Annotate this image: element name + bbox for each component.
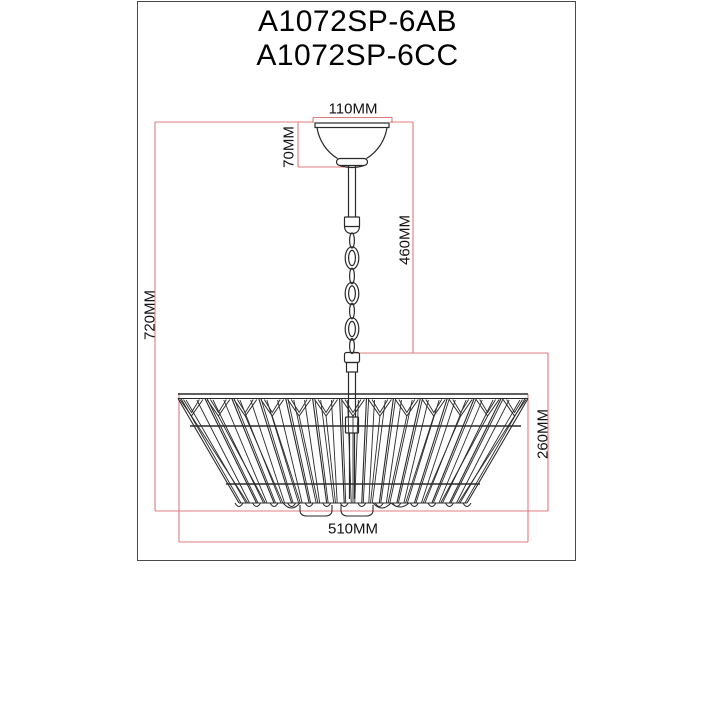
dim-label-total-height: 720MM: [142, 290, 159, 340]
chain-connector-top: [345, 217, 360, 234]
chandelier-artwork: [178, 123, 528, 516]
hanging-chain: [345, 233, 359, 354]
dim-label-chain-length: 460MM: [397, 215, 414, 265]
upper-rod: [349, 166, 356, 218]
dim-label-shade-height: 260MM: [535, 409, 552, 459]
crystal-shade: [178, 394, 528, 516]
dimension-lines: [155, 118, 548, 543]
technical-drawing-page: A1072SP-6AB A1072SP-6CC: [0, 0, 715, 715]
rod-nut: [346, 417, 359, 433]
dim-label-canopy-width: 110MM: [329, 101, 378, 118]
dim-label-shade-diameter: 510MM: [328, 521, 378, 538]
chain-connector-bottom: [345, 353, 360, 373]
dim-label-canopy-height: 70MM: [281, 126, 298, 168]
ceiling-canopy: [315, 123, 389, 168]
